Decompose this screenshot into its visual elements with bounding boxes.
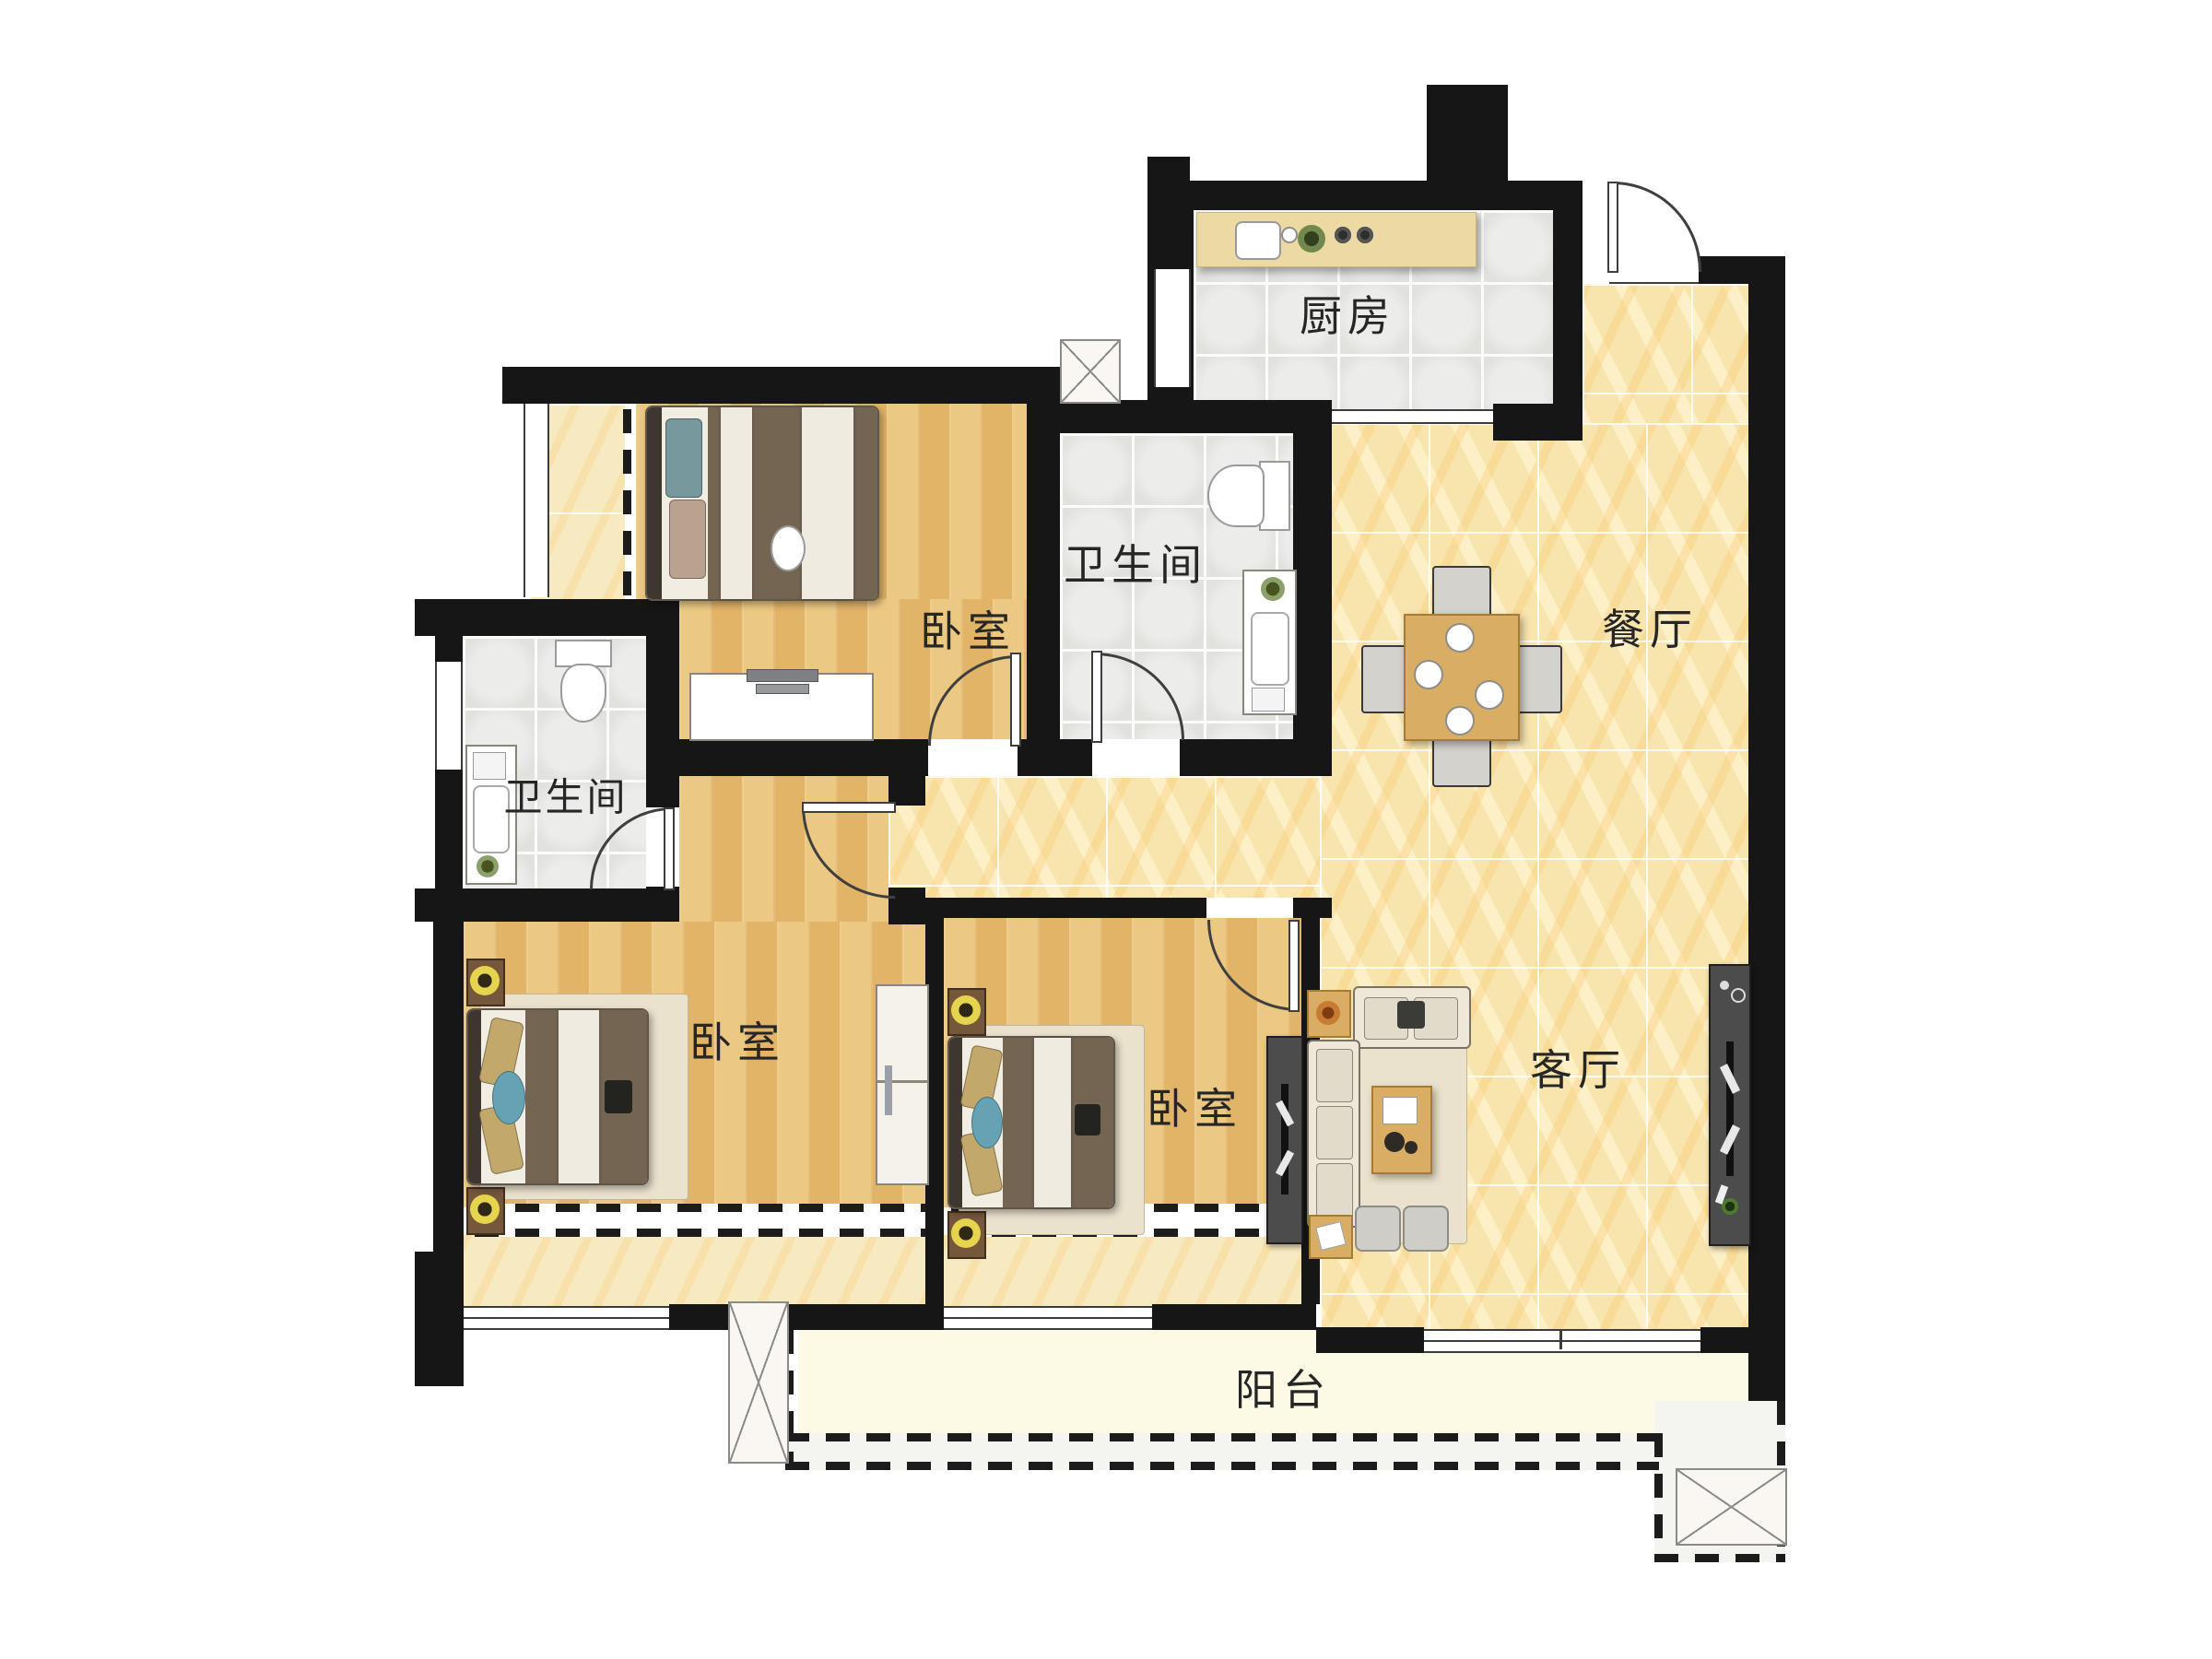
dashed-line (475, 1229, 925, 1237)
room-label-bedroom-mid: 卧室 (1147, 1076, 1242, 1136)
side-table-book (1315, 1221, 1346, 1251)
kitchen-sliding-track (1332, 409, 1493, 424)
wardrobe-left-bedroom (876, 984, 929, 1185)
wall (1147, 157, 1190, 182)
wall (1293, 400, 1332, 776)
sliding-window-seam (1559, 1329, 1562, 1349)
pillow-round (971, 1097, 1003, 1148)
ottoman (1403, 1206, 1449, 1252)
wall (1293, 898, 1332, 918)
tv-icon (1726, 1041, 1734, 1176)
laptop-icon (756, 684, 809, 694)
room-label-bathroom-left: 卫生间 (503, 767, 628, 823)
bed-remote-decor (605, 1080, 632, 1113)
dining-chair (1432, 566, 1491, 618)
kitchen-sink (1235, 221, 1281, 260)
headboard (949, 1038, 962, 1207)
sofa-cushion (1316, 1049, 1353, 1102)
nightstand (466, 959, 505, 1006)
wall (435, 770, 463, 888)
wall (435, 636, 463, 662)
wall (1316, 1327, 1424, 1353)
dining-plate (1445, 623, 1475, 653)
sofa-cushion (1316, 1106, 1353, 1159)
wall (415, 888, 679, 922)
nightstand (947, 988, 986, 1036)
headboard (468, 1010, 481, 1183)
wall (1700, 1327, 1785, 1353)
side-table (1309, 1215, 1353, 1259)
dining-chair (1514, 645, 1562, 713)
wall (1027, 400, 1332, 433)
bed-top-bedroom (645, 406, 879, 601)
vanity-top-bathroom (1242, 570, 1297, 715)
tv-console-decor (1731, 988, 1746, 1003)
floor-entry (1583, 284, 1748, 433)
bay-window-left-bedroom (475, 1204, 925, 1237)
room-label-dining: 餐厅 (1602, 596, 1698, 657)
window (944, 1306, 1152, 1330)
entry-door-panel (1607, 182, 1618, 273)
nightstand (466, 1187, 505, 1235)
vanity-plant-decor (477, 855, 499, 877)
wall (1748, 256, 1785, 1401)
entry-door-arc (1613, 182, 1701, 272)
balcony-sliding-window (1424, 1329, 1700, 1353)
coffee-table-tray (1382, 1097, 1418, 1124)
ac-platform-left (728, 1301, 789, 1464)
pillow-round (492, 1071, 525, 1124)
wall (1018, 739, 1092, 776)
wall (1553, 210, 1583, 406)
lamp-icon (470, 966, 500, 995)
blanket-runner (802, 407, 853, 599)
side-table (1307, 990, 1351, 1038)
room-label-balcony: 阳台 (1235, 1357, 1331, 1418)
wall (888, 772, 925, 806)
flue-shaft (1427, 85, 1508, 182)
tv-console-mid-bedroom (1266, 1036, 1303, 1244)
dining-chair (1432, 737, 1491, 787)
blanket-runner (559, 1010, 599, 1183)
blanket-runner (1034, 1038, 1071, 1207)
bedroom-left-door-panel (802, 802, 896, 813)
room-label-bathroom-top: 卫生间 (1064, 532, 1207, 593)
toilet-left-bathroom-bowl (560, 664, 606, 723)
dining-plate (1445, 706, 1475, 735)
wall (646, 739, 928, 776)
pillow (669, 500, 706, 579)
dining-chair (1361, 645, 1409, 713)
window (464, 1306, 669, 1330)
wall (1152, 1304, 1316, 1330)
wall (1493, 404, 1583, 441)
tv-console-plant (1722, 1198, 1738, 1215)
floor-plan: 厨房 餐厅 卧室 卫生间 卫生间 卧室 卧室 客厅 阳台 (0, 0, 2212, 1659)
lamp-icon (951, 1218, 981, 1248)
bay-window-sill (464, 1233, 925, 1306)
room-label-living: 客厅 (1530, 1037, 1626, 1098)
coffee-table-teapot (1384, 1132, 1405, 1152)
wall (1147, 181, 1583, 210)
balcony-dashed-bottom (785, 1462, 1659, 1470)
kitchen-stove-burner (1357, 227, 1373, 243)
dining-plate (1414, 660, 1443, 689)
bed-mid-bedroom (947, 1036, 1115, 1209)
floor-corridor (888, 776, 1320, 898)
window (1154, 269, 1191, 387)
kitchen-stove-burner (1335, 227, 1351, 243)
tv-console-decor (1720, 981, 1729, 990)
wardrobe-handle (885, 1088, 892, 1115)
window (435, 662, 463, 770)
wall (669, 1304, 944, 1330)
sofa-main (1307, 1040, 1360, 1228)
tv-console-living (1709, 964, 1751, 1246)
bathroom-left-door-panel (664, 807, 675, 890)
wall (433, 922, 464, 1252)
bed-tray-decor (771, 525, 806, 571)
bed-left-bedroom (466, 1008, 649, 1185)
bed-remote-decor (1075, 1104, 1100, 1135)
washer (1252, 688, 1285, 712)
wall (415, 599, 679, 636)
kitchen-faucet (1281, 227, 1298, 243)
dining-plate (1475, 680, 1504, 710)
room-label-bedroom-top: 卧室 (920, 598, 1016, 659)
coffee-table-cup (1405, 1141, 1418, 1154)
bay-window-top-bedroom-dash (623, 409, 631, 595)
ottoman (1355, 1206, 1401, 1252)
sofa-cushion (1316, 1163, 1353, 1218)
lamp-icon (470, 1194, 500, 1224)
side-table-plant (1316, 1001, 1340, 1025)
headboard (647, 407, 662, 599)
bathroom-top-door-panel (1091, 651, 1102, 743)
toilet-top-bathroom-bowl (1207, 465, 1265, 527)
wall (502, 367, 1065, 404)
wall (925, 898, 1206, 918)
room-label-kitchen: 厨房 (1300, 283, 1395, 344)
balcony-dashed-bottom (785, 1433, 1659, 1441)
bedroom-mid-door-panel (1288, 920, 1300, 1012)
lamp-icon (951, 995, 981, 1025)
sofa-pillow-dark (1397, 1001, 1425, 1029)
laptop-icon (747, 669, 818, 682)
wall (415, 1252, 464, 1386)
desk-top-bedroom (689, 673, 874, 741)
nightstand (947, 1211, 986, 1259)
balcony-dashed-corner (1654, 1554, 1785, 1562)
blanket-runner (721, 407, 752, 599)
dashed-line (475, 1204, 925, 1212)
wall (646, 599, 679, 807)
duct-shaft (1060, 339, 1121, 404)
ac-platform-right (1676, 1468, 1787, 1546)
window (524, 404, 549, 597)
sofa-loveseat (1353, 986, 1471, 1049)
sink-basin (1251, 612, 1289, 686)
washer (473, 752, 506, 780)
bedroom-top-door-panel (1010, 653, 1021, 747)
balcony-dashed-corner (1654, 1433, 1663, 1562)
vanity-plant-decor (1261, 577, 1285, 601)
kitchen-plant-decor (1298, 225, 1325, 253)
coffee-table (1371, 1086, 1432, 1174)
bay-window-sill (944, 1233, 1301, 1306)
room-label-bedroom-left: 卧室 (689, 1009, 785, 1070)
pillow (665, 418, 702, 498)
